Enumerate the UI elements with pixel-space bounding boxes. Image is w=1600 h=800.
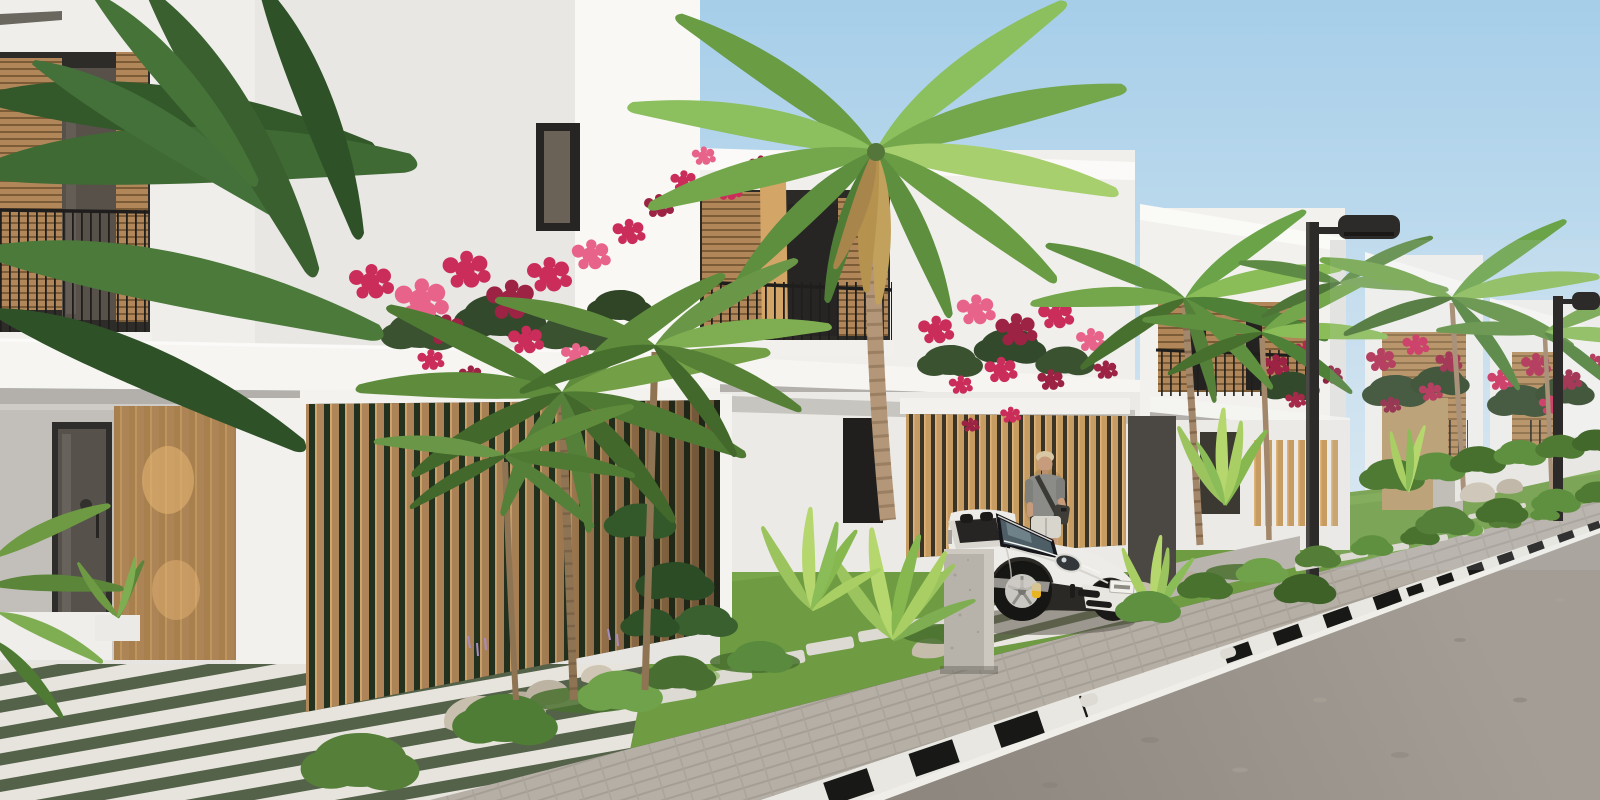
scene-canvas: Sunny 3D architectural rendering of a mo… (0, 0, 1600, 800)
wristwatch (1061, 508, 1067, 512)
white-planter (95, 615, 140, 641)
villa-street-rendering: Sunny 3D architectural rendering of a mo… (0, 0, 1600, 800)
lamp-head (1572, 292, 1600, 310)
person-head (1038, 457, 1053, 472)
villa-1-tower-window (536, 123, 580, 231)
